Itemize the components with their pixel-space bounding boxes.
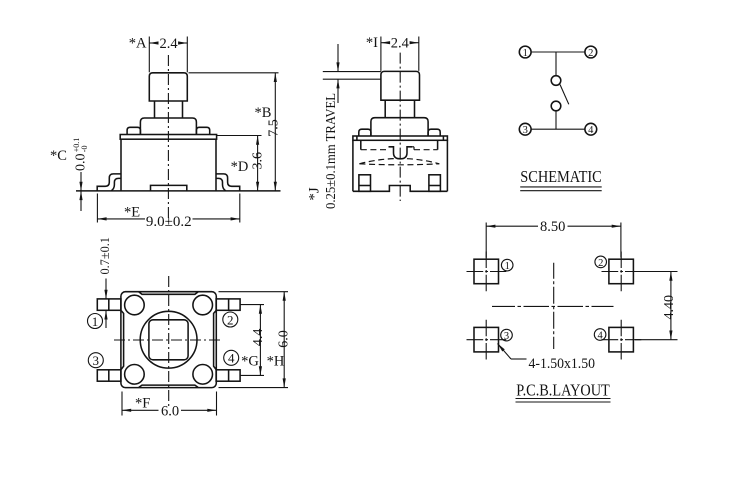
svg-text:4: 4 [588,125,594,136]
svg-text:0.25±0.1mm TRAVEL: 0.25±0.1mm TRAVEL [323,93,338,209]
svg-text:*H: *H [267,353,285,369]
svg-text:4: 4 [228,351,235,366]
svg-text:-0: -0 [80,146,89,153]
svg-text:SCHEMATIC: SCHEMATIC [520,167,602,186]
svg-text:*I: *I [366,35,378,51]
svg-text:9.0±0.2: 9.0±0.2 [146,214,192,230]
svg-text:4: 4 [597,330,603,341]
svg-text:2: 2 [588,48,593,59]
svg-text:7.5: 7.5 [266,119,281,137]
svg-text:*B: *B [255,105,272,121]
svg-text:*E: *E [124,205,140,221]
svg-text:6.0: 6.0 [277,330,292,348]
svg-text:*A: *A [129,36,147,52]
svg-text:2.4: 2.4 [159,36,178,52]
svg-text:*J: *J [306,187,322,201]
svg-text:2.4: 2.4 [391,36,410,52]
svg-text:4.4: 4.4 [251,329,266,347]
svg-text:1: 1 [505,261,510,272]
svg-text:*D: *D [231,159,249,175]
svg-text:*G: *G [241,353,259,369]
svg-text:8.50: 8.50 [540,219,565,235]
svg-text:2: 2 [598,258,603,269]
svg-text:*C: *C [50,148,67,164]
svg-text:2: 2 [227,312,234,327]
svg-text:3.6: 3.6 [250,152,265,170]
svg-text:0.7±0.1: 0.7±0.1 [97,237,112,274]
svg-text:3: 3 [523,125,528,136]
svg-text:1: 1 [92,314,99,329]
svg-text:*F: *F [135,396,150,412]
svg-text:4.40: 4.40 [662,295,677,320]
svg-text:3: 3 [93,353,100,368]
svg-text:0.0: 0.0 [74,153,89,171]
svg-text:P.C.B.LAYOUT: P.C.B.LAYOUT [516,380,610,399]
svg-text:6.0: 6.0 [161,404,179,420]
svg-text:3: 3 [504,331,509,342]
svg-text:1: 1 [523,48,528,59]
svg-text:4-1.50x1.50: 4-1.50x1.50 [529,356,596,372]
